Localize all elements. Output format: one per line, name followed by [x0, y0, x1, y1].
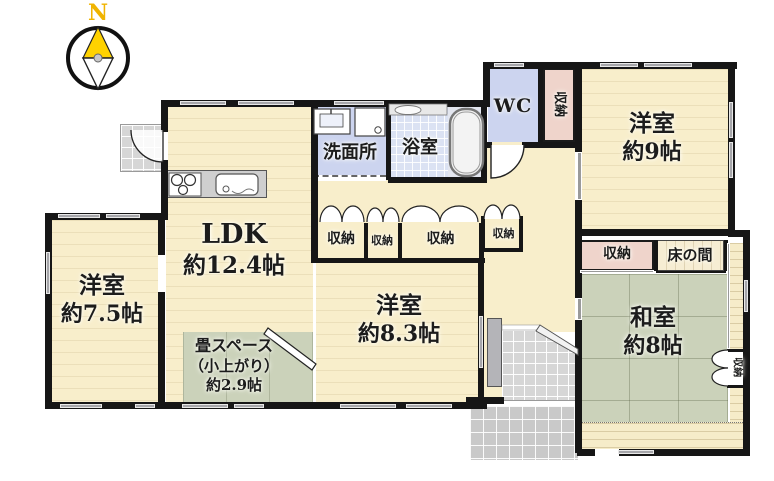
tatami-corner-label: 畳スペース （小上がり） 約2.9帖: [170, 336, 298, 396]
door-gap: [595, 449, 619, 456]
room-ldk-label: LDK 約12.4帖: [168, 218, 300, 281]
room-name: 洋室: [333, 292, 465, 321]
window: [182, 404, 228, 408]
room-western-9-label: 洋室 約9帖: [588, 110, 716, 166]
room-size: 約7.5帖: [46, 301, 158, 329]
wall: [161, 160, 168, 220]
window: [618, 450, 654, 454]
window: [744, 280, 748, 312]
room-size: 約8.3帖: [333, 321, 465, 349]
wall: [158, 292, 165, 409]
sliding-door-veranda: [727, 243, 730, 349]
door-gap: [161, 132, 168, 160]
room-size: 約9帖: [588, 139, 716, 167]
closet-hall-2-label: 収納: [366, 234, 398, 248]
wall: [466, 397, 504, 404]
window: [334, 101, 384, 105]
window: [238, 101, 294, 105]
wall: [481, 248, 523, 252]
wall: [575, 229, 733, 236]
closet-japanese-main-label: 収納: [580, 246, 654, 264]
window: [406, 404, 452, 408]
room-japanese-label: 和室 約8帖: [590, 304, 716, 360]
entry-tile-floor: [502, 330, 578, 403]
wall: [388, 177, 487, 183]
window: [729, 102, 733, 138]
east-veranda-floor: [730, 243, 743, 422]
south-veranda-floor: [580, 422, 743, 449]
room-name: 和室: [590, 304, 716, 333]
line1: 畳スペース: [170, 336, 298, 357]
washroom-step-line: [313, 175, 386, 181]
bathroom-label: 浴室: [390, 137, 450, 160]
wall: [656, 271, 726, 273]
sliding-door-closet: [580, 270, 654, 273]
room-name: 洋室: [46, 272, 158, 301]
closet-hall-4-label: 収納: [484, 227, 523, 241]
line3: 約2.9帖: [170, 376, 298, 396]
door-leaf: [578, 299, 581, 319]
wall: [575, 65, 582, 152]
window: [60, 404, 102, 408]
closet-beside-wc-label: 収納: [551, 86, 567, 122]
line2: （小上がり）: [170, 357, 298, 377]
room-name: 洋室: [588, 110, 716, 139]
porch-step-edge: [502, 400, 578, 406]
door-leaf: [578, 153, 581, 199]
window: [494, 63, 524, 67]
closet-hall-3-label: 収納: [402, 231, 479, 249]
compass-north-label: N: [84, 0, 112, 28]
kitchen-counter: [166, 170, 267, 198]
door-gap: [158, 255, 165, 292]
window: [600, 63, 638, 67]
room-western-75-label: 洋室 約7.5帖: [46, 272, 158, 328]
wall: [743, 230, 750, 456]
shoe-cabinet: [487, 318, 502, 387]
compass-icon: [68, 27, 128, 89]
room-size: 約8帖: [590, 333, 716, 361]
tokonoma-label: 床の間: [656, 246, 724, 265]
wall: [522, 142, 543, 148]
window: [644, 63, 692, 67]
room-size: 約12.4帖: [168, 252, 300, 281]
wall: [486, 142, 492, 148]
window: [58, 214, 100, 218]
entry-porch-floor: [470, 406, 578, 460]
room-western-83-label: 洋室 約8.3帖: [333, 292, 465, 348]
closet-hall-1-label: 収納: [318, 231, 364, 249]
window: [729, 142, 733, 178]
window: [479, 316, 483, 368]
window: [106, 214, 140, 218]
window: [234, 404, 264, 408]
wall: [538, 65, 543, 145]
wall: [313, 258, 485, 263]
window: [340, 404, 396, 408]
washroom-label: 洗面所: [311, 142, 389, 165]
room-name: LDK: [168, 218, 300, 252]
window: [180, 101, 226, 105]
window: [135, 404, 155, 408]
wall: [540, 142, 578, 148]
wall: [311, 183, 318, 263]
bathtub-zone: [448, 103, 483, 177]
closet-japanese-small-label: 収納: [730, 353, 743, 381]
service-porch: [120, 124, 164, 172]
wall: [161, 100, 168, 132]
floor-plan-canvas: N LDK 約12.4帖 洋室 約7.5帖 畳スペース （小上がり） 約2.9帖…: [0, 0, 774, 481]
wall: [575, 320, 582, 453]
toilet-label: WC: [488, 95, 538, 119]
